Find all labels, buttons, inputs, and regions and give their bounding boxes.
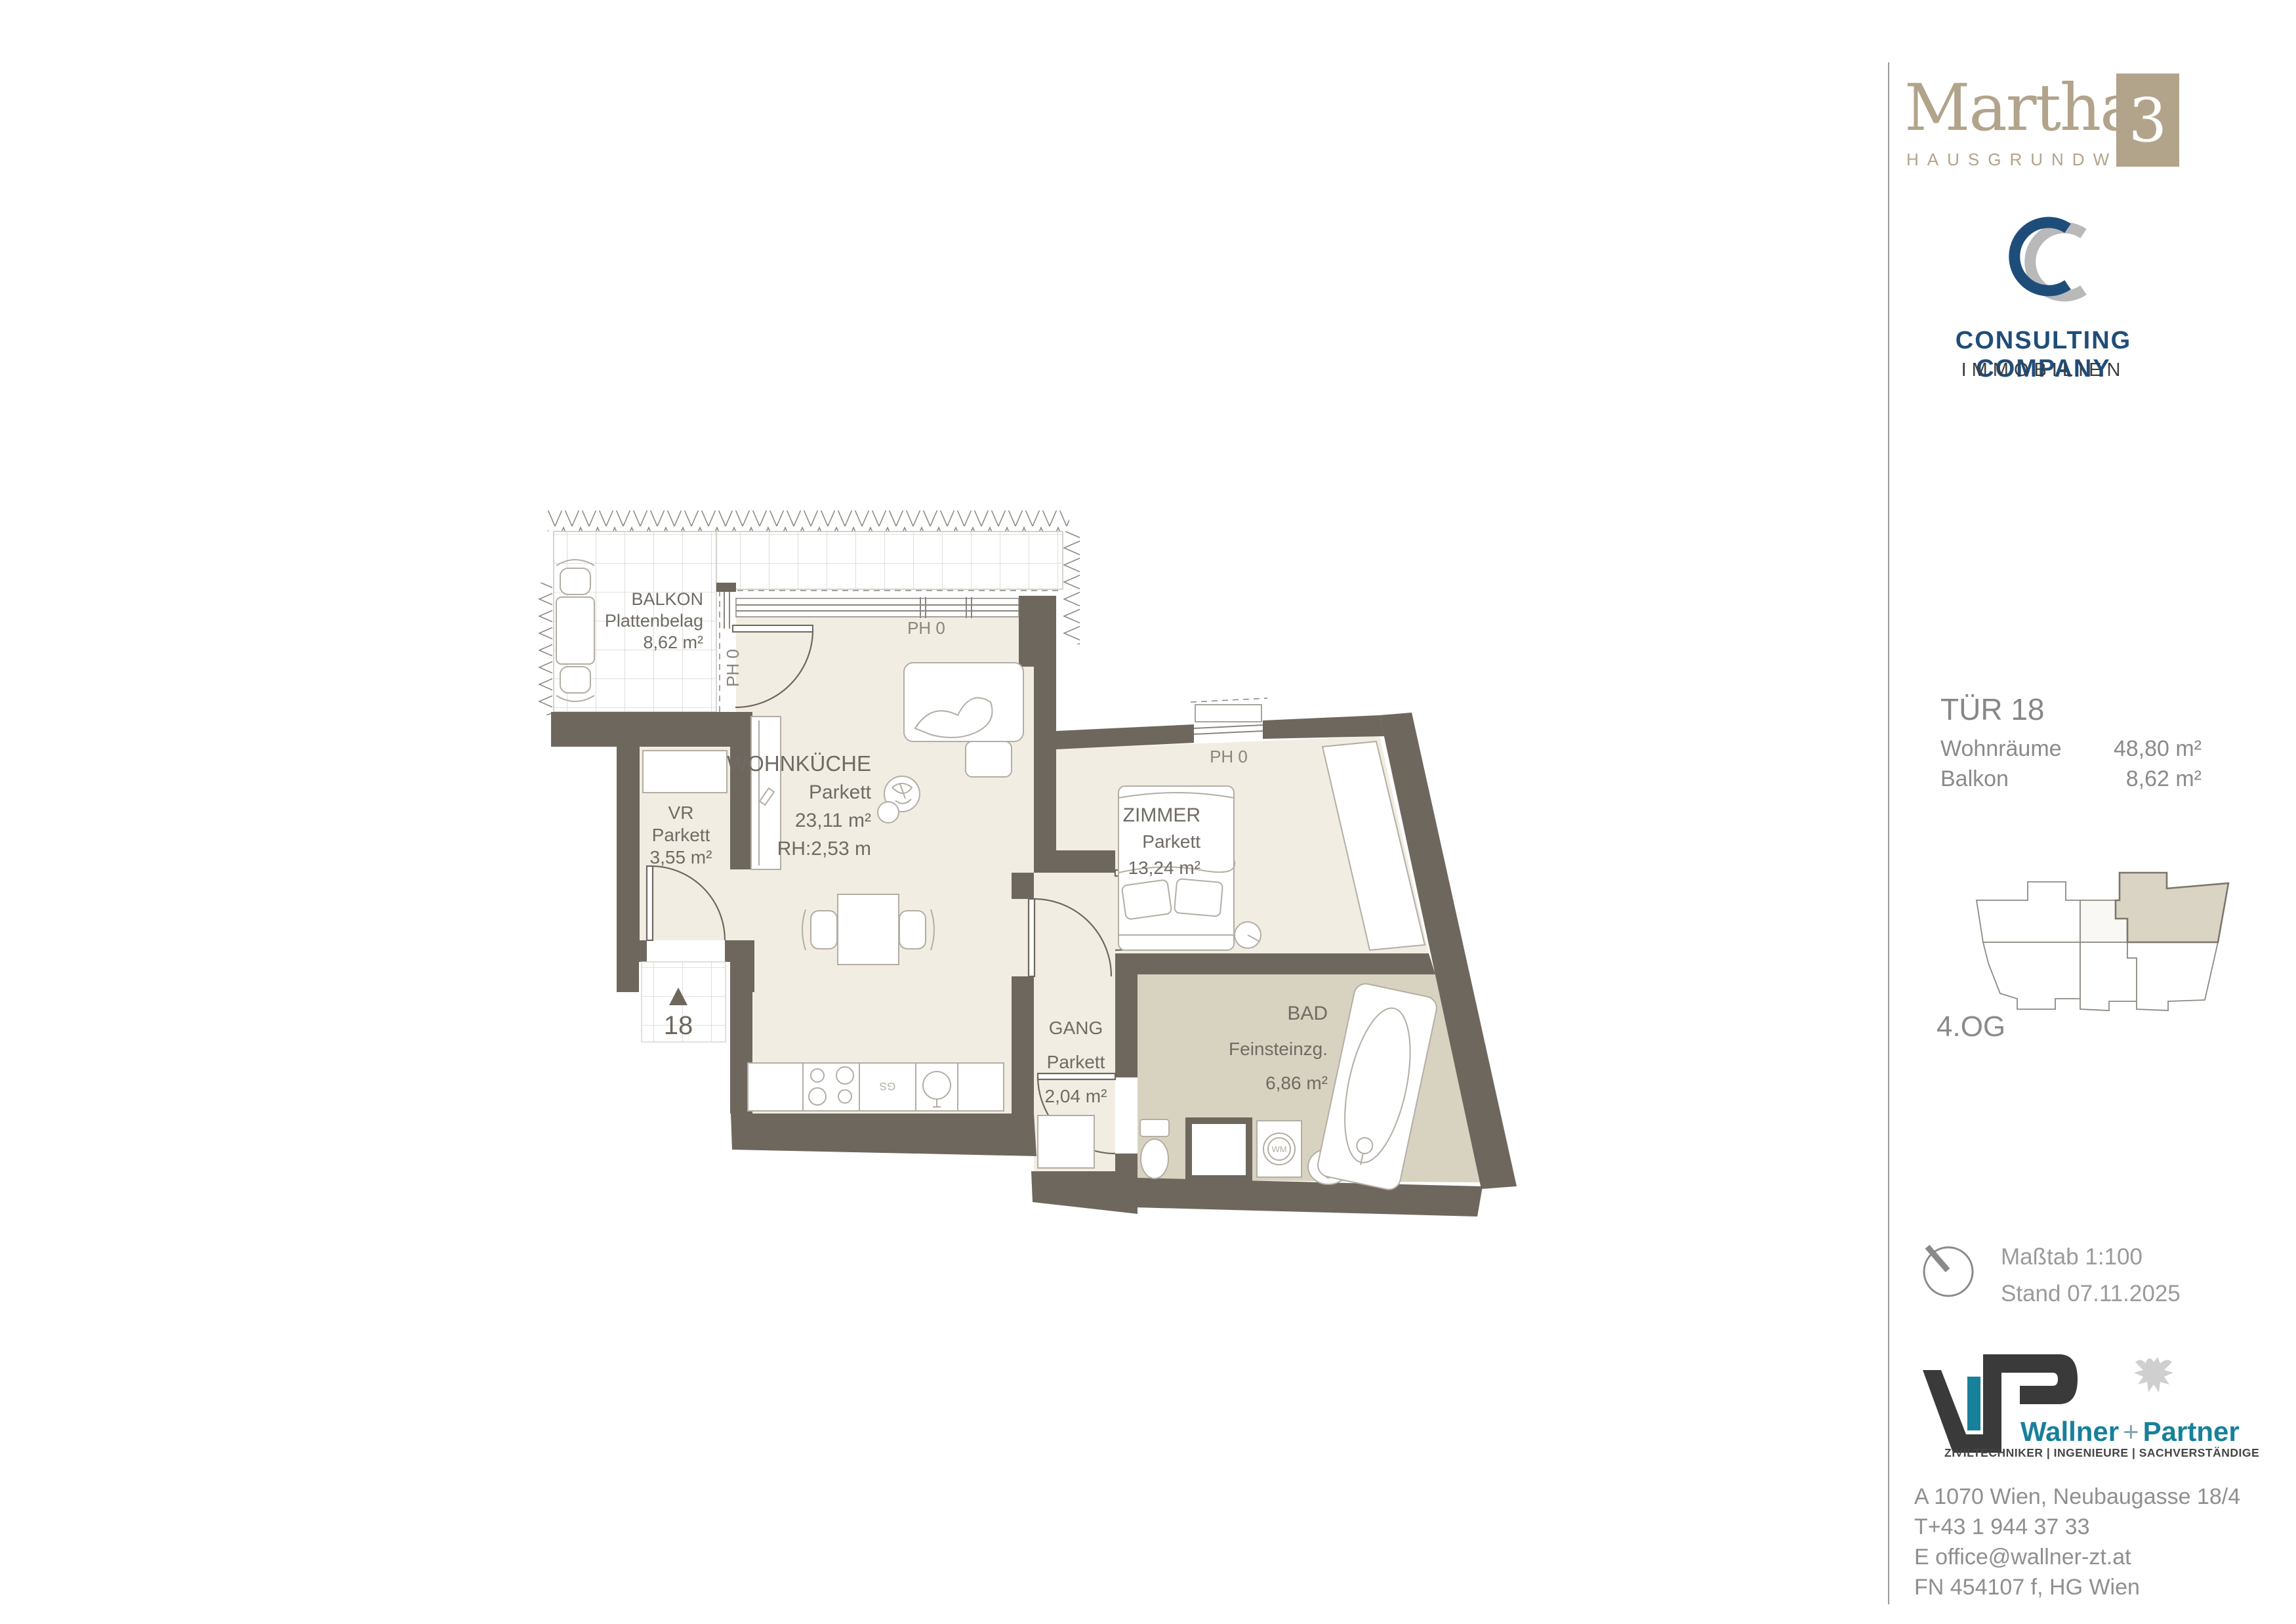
svg-text:GANG: GANG: [1049, 1018, 1103, 1038]
floor-plan: BALKON Plattenbelag 8,62 m²: [538, 505, 1522, 1227]
engineer-address: A 1070 Wien, Neubaugasse 18/4 T+43 1 944…: [1914, 1482, 2240, 1602]
eagle-icon: [2134, 1357, 2173, 1392]
svg-text:23,11 m²: 23,11 m²: [795, 810, 871, 831]
entry-corridor: 18: [642, 962, 726, 1042]
address-line: T+43 1 944 37 33: [1914, 1512, 2240, 1542]
kitchen-sink: [923, 1072, 951, 1099]
dishwasher-label: GS: [880, 1080, 896, 1093]
sidebar-divider: [1888, 62, 1889, 1604]
vr-passage: [730, 869, 752, 940]
address-line: FN 454107 f, HG Wien: [1914, 1572, 2240, 1602]
wardrobe-vr: [643, 751, 727, 793]
broker-subtitle: IMMOBILIEN: [1889, 360, 2198, 381]
ph0-balcony-door: PH 0: [723, 649, 743, 687]
engineer-name-main: Wallner: [2020, 1416, 2119, 1447]
engineer-name-second: Partner: [2143, 1416, 2240, 1447]
door-number: 18: [664, 1011, 693, 1040]
svg-text:3,55 m²: 3,55 m²: [650, 847, 712, 867]
svg-text:Parkett: Parkett: [652, 825, 710, 845]
floorplan-sheet: BALKON Plattenbelag 8,62 m²: [0, 0, 2296, 1624]
engineer-tagline: ZIVILTECHNIKER | INGENIEURE | SACHVERSTÄ…: [1944, 1446, 2259, 1460]
address-line: E office@wallner-zt.at: [1914, 1542, 2240, 1572]
balcony-door-leaf: [733, 625, 813, 632]
north-compass-icon: [1919, 1239, 1978, 1301]
scale-label: Maßtab 1:100: [2001, 1244, 2142, 1270]
svg-text:RH:2,53 m: RH:2,53 m: [777, 838, 871, 860]
zimmer-window: [1191, 698, 1267, 734]
unit-row-label: Balkon: [1940, 766, 2009, 792]
kitchen-counter: [748, 1063, 1004, 1111]
engineer-name-plus: +: [2119, 1416, 2143, 1447]
floor-level-label: 4.OG: [1937, 1010, 2005, 1043]
stove-burner: [811, 1069, 824, 1082]
svg-text:VR: VR: [668, 802, 694, 823]
key-plan-highlighted-unit: [2116, 873, 2228, 942]
date-label: Stand 07.11.2025: [2001, 1281, 2181, 1307]
svg-text:Parkett: Parkett: [1047, 1052, 1105, 1072]
address-line: A 1070 Wien, Neubaugasse 18/4: [1914, 1482, 2240, 1512]
svg-text:WOHNKÜCHE: WOHNKÜCHE: [727, 751, 871, 776]
wk-window: [736, 597, 1019, 618]
unit-row-value: 8,62 m²: [2126, 766, 2202, 792]
project-subtitle: HAUSGRUNDWEG: [1906, 150, 2160, 170]
ph0-wk: PH 0: [907, 618, 945, 638]
vp-teal-bar: [1967, 1377, 1980, 1430]
svg-text:Feinsteinzg.: Feinsteinzg.: [1229, 1039, 1328, 1059]
gang-label: GANG Parkett 2,04 m²: [1045, 1018, 1107, 1106]
consulting-company-logo-icon: [1994, 217, 2099, 315]
project-logo-name: Martha: [1904, 71, 2137, 146]
svg-text:2,04 m²: 2,04 m²: [1045, 1086, 1107, 1106]
railing-hatch-right: [1063, 531, 1080, 644]
svg-text:6,86 m²: 6,86 m²: [1265, 1073, 1328, 1093]
svg-text:13,24 m²: 13,24 m²: [1128, 858, 1201, 878]
vp-mark: [1923, 1354, 2001, 1453]
unit-row-value: 48,80 m²: [2114, 736, 2202, 762]
railing-hatch-left: [538, 583, 552, 715]
unit-title: TÜR 18: [1940, 692, 2044, 727]
ph0-zimmer: PH 0: [1210, 747, 1248, 766]
svg-text:ZIMMER: ZIMMER: [1123, 804, 1200, 826]
project-number: 3: [2129, 85, 2167, 156]
key-plan: [1958, 858, 2266, 1022]
wm-label: WM: [1271, 1144, 1286, 1154]
unit-row-wohnraeume: Wohnräume 48,80 m²: [1940, 736, 2202, 762]
svg-text:BAD: BAD: [1287, 1003, 1328, 1024]
svg-text:Parkett: Parkett: [809, 781, 872, 803]
wc: [1140, 1119, 1169, 1136]
unit-row-balkon: Balkon 8,62 m²: [1940, 766, 2202, 792]
shaft: [1189, 1121, 1249, 1178]
svg-text:Parkett: Parkett: [1142, 831, 1200, 852]
gang-cabinet: [1038, 1115, 1094, 1168]
balcony-table-chairs: [556, 560, 594, 701]
engineer-name: Wallner+Partner: [2020, 1416, 2240, 1447]
unit-row-label: Wohnräume: [1940, 736, 2062, 762]
svg-text:Plattenbelag: Plattenbelag: [605, 611, 703, 631]
svg-text:BALKON: BALKON: [631, 589, 703, 609]
railing-hatch-top: [548, 510, 1069, 531]
svg-text:8,62 m²: 8,62 m²: [643, 633, 703, 652]
